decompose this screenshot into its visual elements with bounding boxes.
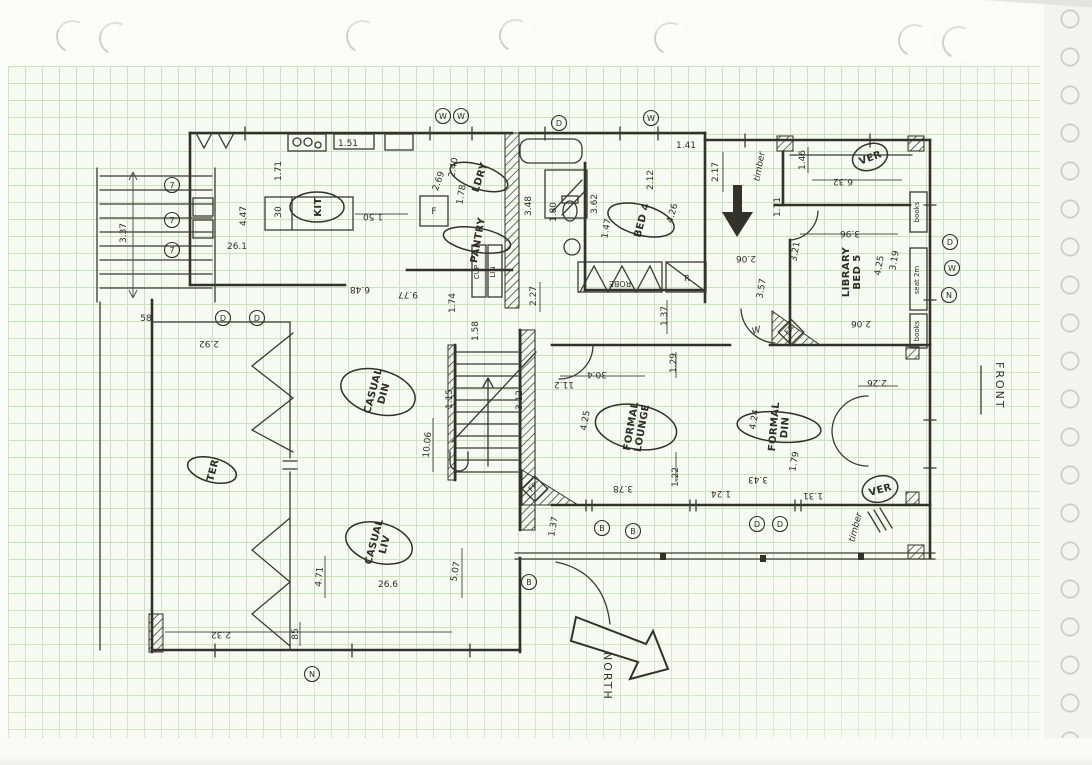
dimension-label: 6.32	[833, 176, 853, 186]
dimension-label: 1.31	[803, 490, 823, 500]
room-label: FORMALLOUNGE	[622, 401, 652, 454]
dimension-label: 58	[140, 314, 152, 324]
dimension-label: 3.57	[755, 278, 768, 299]
fixture-label: CUP	[473, 265, 481, 279]
dimension-label: 1.37	[547, 516, 560, 537]
dimension-label: 3.12	[515, 390, 525, 410]
dimension-label: 11.2	[554, 379, 574, 389]
room-label: CASUALLIV	[363, 518, 396, 569]
dimension-label: 1.37	[660, 306, 670, 326]
room-label: CASUALDIN	[362, 367, 395, 418]
dimension-label: 4.25	[579, 410, 592, 431]
dimension-label: 3.37	[119, 223, 129, 243]
dimension-label: 1.22	[671, 467, 681, 487]
dimension-label: 1.80	[549, 202, 559, 222]
room-label: TER	[205, 458, 221, 483]
marker-letter: D	[777, 520, 783, 529]
dimension-label: 10.06	[422, 431, 434, 458]
fixture-label: R.	[684, 274, 692, 283]
dimension-label: 2.06	[851, 318, 871, 328]
thin-structure	[152, 127, 936, 657]
fixture-label: timber	[753, 150, 768, 182]
fixture-label: W	[751, 325, 763, 337]
marker-letter: W	[647, 114, 655, 123]
dimension-label: 1.78	[455, 184, 468, 206]
dimension-label: 1.46	[798, 150, 808, 170]
entry-direction-arrow	[722, 185, 753, 237]
fixture-label: LIN	[489, 266, 497, 277]
zigzag-screen	[252, 333, 293, 452]
marker-letter: D	[556, 119, 562, 128]
zigzag-screen	[252, 518, 290, 646]
marker-letter: D	[254, 314, 260, 323]
dimension-label: 1.51	[338, 139, 358, 149]
stairs-up-arrow	[483, 378, 493, 466]
door-arc	[556, 562, 610, 624]
dimension-label: 26.1	[227, 242, 247, 252]
dimension-label: 1.71	[773, 197, 783, 217]
room-label: PANTRY	[469, 216, 488, 264]
fixture-label: ROBE	[609, 279, 631, 288]
dimension-label: 3.48	[524, 196, 534, 216]
room-label: VER	[868, 482, 894, 499]
dimension-label: 3.96	[840, 228, 860, 238]
marker-letter: B	[526, 578, 532, 587]
dimension-label: 2.92	[199, 338, 219, 348]
dimension-label: 2.40	[447, 157, 460, 179]
dimension-label: 2.69	[431, 170, 447, 193]
window-v-mark	[196, 133, 212, 148]
marker-letter: B	[599, 524, 605, 533]
fixture-label: F	[431, 207, 436, 217]
dimension-label: 1.50	[363, 211, 383, 221]
dimension-label: 3.43	[748, 474, 768, 484]
room-label: KIT	[313, 197, 324, 217]
north-label: NORTH	[601, 652, 614, 701]
marker-letter: D	[754, 520, 760, 529]
dimension-label: 4.26	[666, 202, 681, 224]
marker-letter: N	[309, 670, 315, 679]
dimension-label: 3.78	[613, 483, 633, 493]
fixture-label: books	[913, 320, 921, 341]
dimension-label: 1.71	[274, 161, 284, 181]
room-label: LDRY	[470, 161, 490, 194]
dimension-label: 1.74	[448, 293, 458, 313]
dimension-label: 4.24	[748, 409, 761, 431]
circled-markers: 777WWDWDDBBDDDWNNB	[165, 109, 960, 682]
marker-letter: 7	[169, 246, 174, 255]
marker-letter: W	[439, 112, 447, 121]
dimension-label: 4.47	[239, 206, 249, 226]
dimension-label: 4.25	[873, 255, 886, 276]
door-arc	[790, 211, 818, 240]
marker-letter: W	[948, 264, 956, 273]
dimension-label: 2.26	[867, 377, 887, 387]
dimension-label: 1.79	[788, 451, 801, 473]
room-label: VER	[858, 149, 884, 167]
window-v-mark	[218, 133, 234, 148]
dimension-label: 1.29	[669, 353, 679, 373]
dimension-label: 1.24	[711, 488, 731, 498]
door-arc	[832, 432, 868, 466]
scanned-floor-plan-page: FRONT NORTH KITLDRYPANTRYBED 4LIBRARYBED…	[0, 0, 1092, 765]
dimension-label: 1.15	[445, 389, 455, 409]
marker-letter: 7	[169, 181, 174, 190]
fixture-label: books	[913, 201, 921, 222]
dimension-label: 6.48	[350, 284, 370, 294]
dimension-label: 3.21	[789, 241, 802, 262]
north-arrow	[571, 617, 668, 679]
dimension-label: 2.17	[711, 162, 721, 182]
marker-letter: N	[946, 291, 952, 300]
marker-letter: B	[630, 527, 636, 536]
fixture-label: seat 2m	[913, 266, 921, 295]
room-label: LIBRARYBED 5	[841, 246, 863, 297]
dimension-label: 5.07	[449, 561, 462, 582]
timber-scribble	[868, 508, 892, 532]
basin	[564, 239, 580, 255]
bathtub	[520, 139, 582, 163]
marker-letter: D	[947, 238, 953, 247]
fixture-label: timber	[847, 511, 865, 544]
pergola-rails	[97, 168, 215, 302]
room-label: FORMALDIN	[767, 401, 793, 452]
sink	[193, 198, 213, 216]
dimension-label: 1.47	[600, 218, 613, 239]
dimension-label: 3.19	[888, 250, 901, 272]
dimension-label: 1.58	[471, 321, 481, 341]
dimension-label: 30	[274, 206, 284, 218]
exterior-interior-walls	[152, 133, 930, 652]
marker-letter: 7	[169, 216, 174, 225]
dimension-label: 2.32	[211, 629, 231, 639]
floor-plan-drawing: FRONT NORTH KITLDRYPANTRYBED 4LIBRARYBED…	[0, 0, 1092, 765]
dimension-label: 2.12	[646, 170, 656, 190]
dimension-label: 26.6	[378, 580, 398, 590]
room-label: BED 4	[633, 202, 653, 239]
dimension-label: 30.4	[587, 369, 607, 379]
dimension-label: 4.71	[314, 566, 326, 587]
dimension-label: 9.77	[398, 289, 418, 299]
door-arc	[832, 396, 868, 432]
front-label: FRONT	[993, 362, 1006, 410]
dimension-label: 2.06	[736, 253, 756, 263]
marker-letter: W	[457, 112, 465, 121]
marker-letter: D	[220, 314, 226, 323]
dimension-label: 2.27	[529, 286, 539, 306]
dimension-label: 3.62	[590, 194, 600, 214]
dimension-label: 1.41	[676, 141, 696, 151]
dimension-label: 85	[291, 628, 301, 639]
